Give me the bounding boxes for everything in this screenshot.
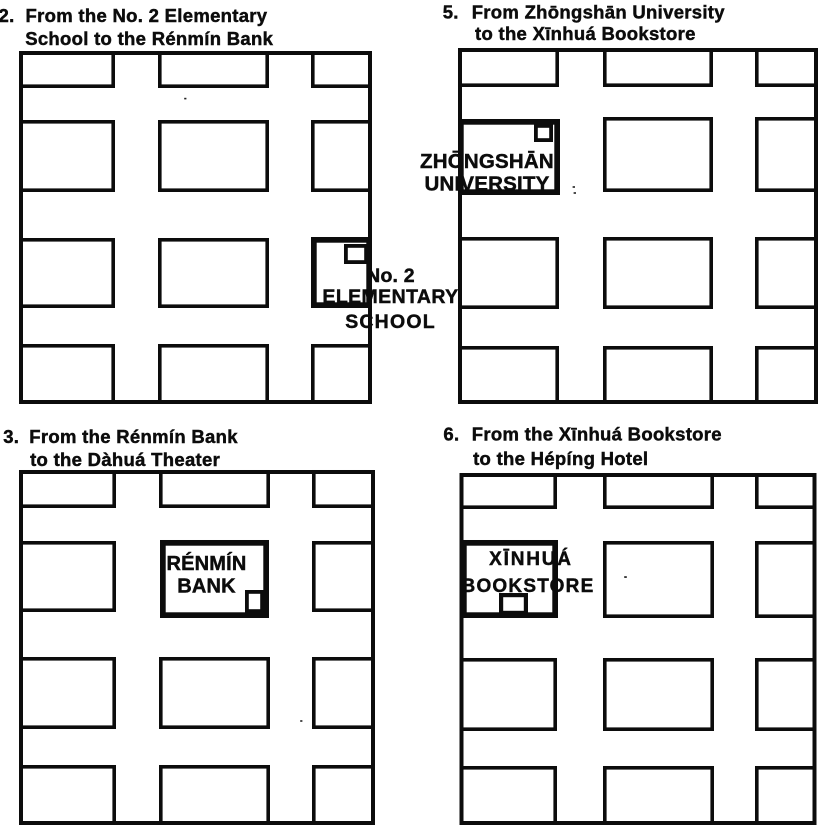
svg-text:5.: 5.	[443, 2, 459, 23]
svg-text:From the No. 2 Elementary: From the No. 2 Elementary	[26, 5, 268, 26]
svg-text:to the Hépíng Hotel: to the Hépíng Hotel	[473, 448, 648, 469]
svg-text:6.: 6.	[443, 424, 459, 445]
svg-text:3.: 3.	[3, 426, 19, 447]
svg-text:RÉNMÍN: RÉNMÍN	[166, 552, 246, 575]
svg-text:ZHŌNGSHĀN: ZHŌNGSHĀN	[420, 150, 554, 173]
svg-text:2.: 2.	[0, 5, 15, 26]
svg-text:UNIVERSITY: UNIVERSITY	[424, 173, 549, 196]
svg-text:BANK: BANK	[177, 575, 236, 597]
svg-text:From the Rénmín Bank: From the Rénmín Bank	[29, 426, 238, 447]
svg-text:XĪNHUÁ: XĪNHUÁ	[489, 548, 573, 570]
svg-text:to the Xīnhuá Bookstore: to the Xīnhuá Bookstore	[475, 23, 696, 44]
svg-text:SCHOOL: SCHOOL	[345, 311, 436, 333]
svg-text:From the Xīnhuá Bookstore: From the Xīnhuá Bookstore	[472, 424, 722, 445]
svg-text:to the Dàhuá Theater: to the Dàhuá Theater	[30, 449, 220, 470]
svg-text:No. 2: No. 2	[366, 265, 415, 287]
svg-text:BOOKSTORE: BOOKSTORE	[462, 576, 595, 597]
svg-text:ELEMENTARY: ELEMENTARY	[322, 286, 458, 308]
svg-text:School to the Rénmín Bank: School to the Rénmín Bank	[25, 28, 273, 49]
svg-text:From Zhōngshān University: From Zhōngshān University	[472, 2, 726, 23]
